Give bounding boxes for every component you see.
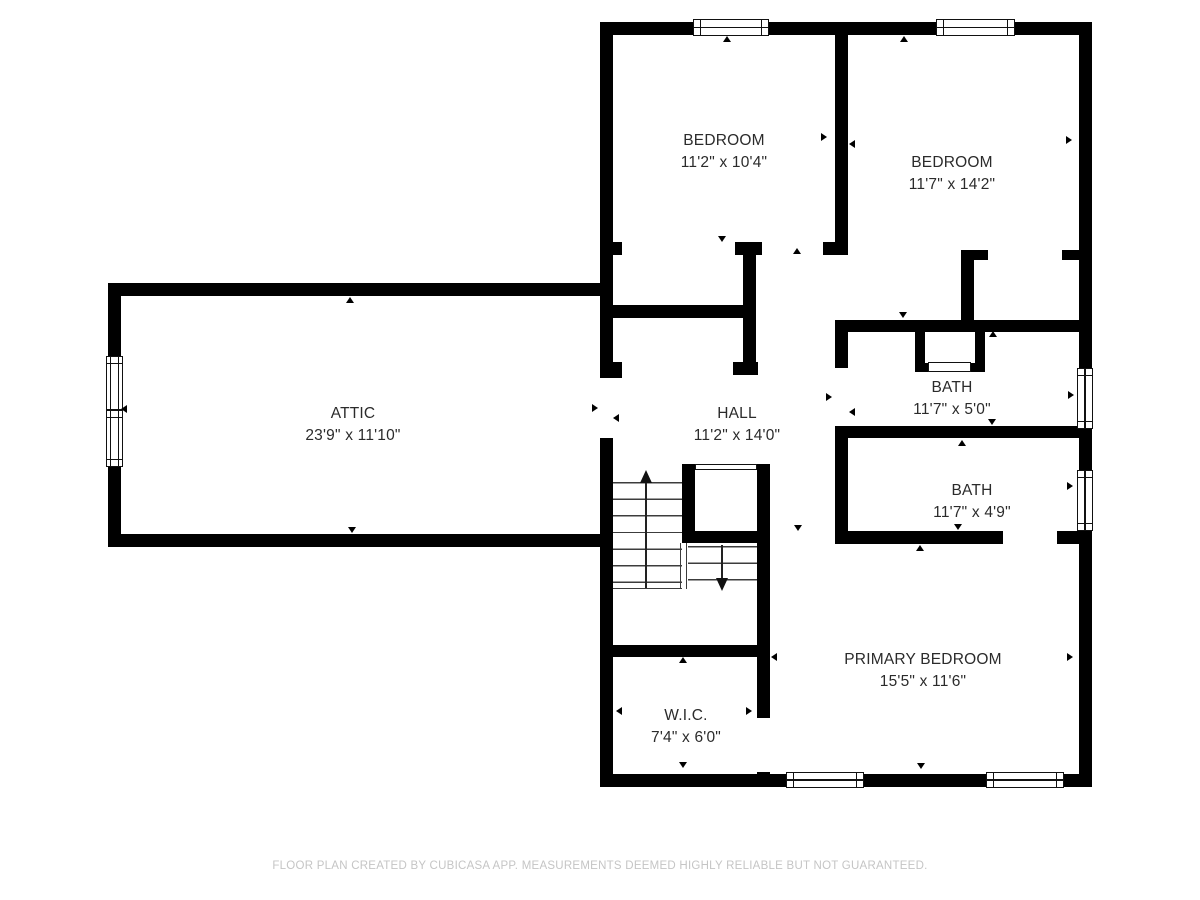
dimension-tick	[616, 707, 622, 715]
wall	[835, 531, 1003, 544]
wall	[835, 426, 1092, 438]
room-name: W.I.C.	[651, 705, 721, 727]
dimension-tick	[916, 545, 924, 551]
dimension-tick	[613, 414, 619, 422]
dimension-tick	[346, 297, 354, 303]
room-name: BATH	[933, 480, 1011, 502]
wall	[108, 534, 613, 547]
room-label-primary-bedroom: PRIMARY BEDROOM 15'5" x 11'6"	[844, 649, 1001, 693]
window	[1077, 368, 1093, 429]
wall	[757, 772, 770, 787]
window	[986, 772, 1064, 788]
wall	[600, 645, 770, 657]
room-dims: 15'5" x 11'6"	[844, 671, 1001, 693]
dimension-tick	[718, 236, 726, 242]
wall	[961, 250, 974, 320]
wall	[682, 531, 770, 543]
stairs-up-arrow-head	[640, 470, 652, 483]
room-dims: 11'7" x 5'0"	[913, 399, 991, 421]
wall	[600, 22, 613, 378]
room-label-bath1: BATH 11'7" x 5'0"	[913, 377, 991, 421]
dimension-tick	[1066, 136, 1072, 144]
dimension-tick	[842, 480, 848, 488]
wall	[961, 250, 988, 260]
dimension-tick	[917, 763, 925, 769]
dimension-tick	[723, 36, 731, 42]
dimension-tick	[793, 248, 801, 254]
room-label-bath2: BATH 11'7" x 4'9"	[933, 480, 1011, 524]
dimension-tick	[1067, 653, 1073, 661]
dimension-tick	[899, 312, 907, 318]
room-label-attic: ATTIC 23'9" x 11'10"	[305, 403, 400, 447]
dimension-tick	[954, 524, 962, 530]
room-label-hall: HALL 11'2" x 14'0"	[694, 403, 780, 447]
dimension-tick	[989, 331, 997, 337]
wall	[1062, 250, 1079, 260]
footer-disclaimer: FLOOR PLAN CREATED BY CUBICASA APP. MEAS…	[0, 860, 1200, 872]
wall	[835, 35, 848, 255]
room-dims: 7'4" x 6'0"	[651, 727, 721, 749]
room-name: HALL	[694, 403, 780, 425]
stairs-up-arrow	[645, 481, 647, 588]
stairs-up-flight	[613, 482, 682, 589]
dimension-tick	[592, 404, 598, 412]
room-label-bedroom1: BEDROOM 11'2" x 10'4"	[681, 130, 767, 174]
window	[786, 772, 864, 788]
room-label-wic: W.I.C. 7'4" x 6'0"	[651, 705, 721, 749]
wall	[735, 242, 762, 255]
dimension-tick	[771, 653, 777, 661]
room-dims: 11'2" x 10'4"	[681, 152, 767, 174]
wall	[969, 363, 985, 372]
dimension-tick	[849, 140, 855, 148]
stairs-divider-line	[680, 543, 681, 589]
dimension-tick	[746, 707, 752, 715]
room-name: PRIMARY BEDROOM	[844, 649, 1001, 671]
wall	[1057, 531, 1079, 544]
wall	[823, 242, 848, 255]
dimension-tick	[1067, 482, 1073, 490]
dimension-tick	[794, 525, 802, 531]
dimension-tick	[900, 36, 908, 42]
stairwell-opening-line	[695, 464, 757, 470]
window	[1077, 470, 1093, 531]
wall	[108, 283, 613, 296]
dimension-tick	[1068, 391, 1074, 399]
room-dims: 11'2" x 14'0"	[694, 425, 780, 447]
dimension-tick	[348, 527, 356, 533]
room-dims: 23'9" x 11'10"	[305, 425, 400, 447]
stairs-down-arrow	[721, 545, 723, 579]
stairs-divider-line	[686, 543, 687, 589]
dimension-tick	[958, 440, 966, 446]
wall	[848, 320, 1092, 332]
wall	[600, 438, 613, 787]
wall	[613, 242, 622, 255]
dimension-tick	[121, 405, 127, 413]
closet-sliding-door	[928, 362, 971, 372]
wall	[733, 362, 758, 375]
wall	[757, 464, 770, 718]
room-dims: 11'7" x 4'9"	[933, 502, 1011, 524]
floor-plan: BEDROOM 11'2" x 10'4" BEDROOM 11'7" x 14…	[0, 0, 1200, 900]
wall	[613, 362, 622, 375]
room-label-bedroom2: BEDROOM 11'7" x 14'2"	[909, 152, 995, 196]
dimension-tick	[679, 657, 687, 663]
room-name: BEDROOM	[909, 152, 995, 174]
room-name: ATTIC	[305, 403, 400, 425]
dimension-tick	[821, 133, 827, 141]
wall	[835, 320, 848, 368]
room-name: BATH	[913, 377, 991, 399]
room-dims: 11'7" x 14'2"	[909, 174, 995, 196]
window	[693, 19, 769, 36]
dimension-tick	[826, 393, 832, 401]
dimension-tick	[679, 762, 687, 768]
dimension-tick	[849, 408, 855, 416]
window	[936, 19, 1015, 36]
wall	[600, 22, 1092, 35]
stairs-down-arrow-head	[716, 578, 728, 591]
wall	[613, 305, 756, 318]
room-name: BEDROOM	[681, 130, 767, 152]
